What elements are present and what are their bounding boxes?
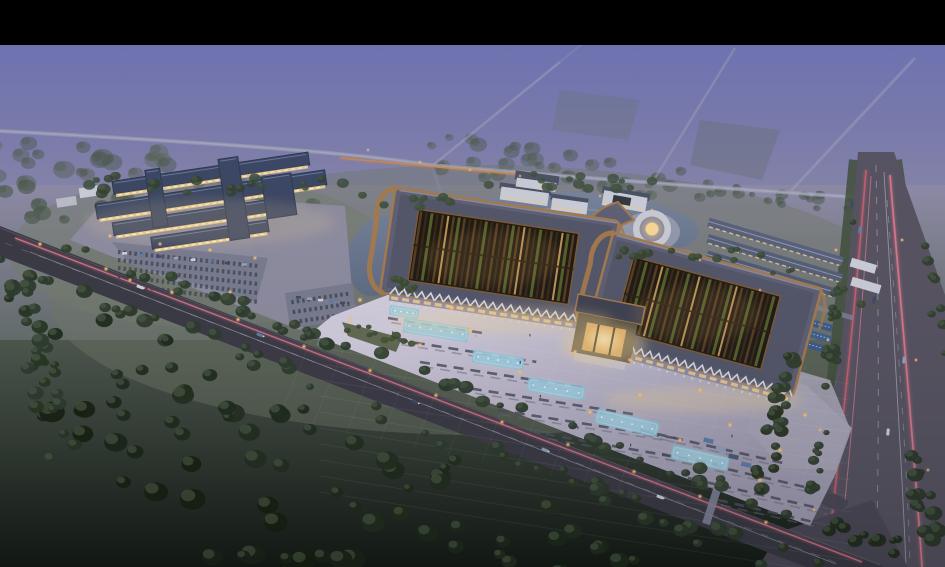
atmosphere-overlay [0,45,945,567]
rendering-canvas [0,0,945,567]
aerial-rendering [0,0,945,567]
letterbox-top-bar [0,0,945,45]
